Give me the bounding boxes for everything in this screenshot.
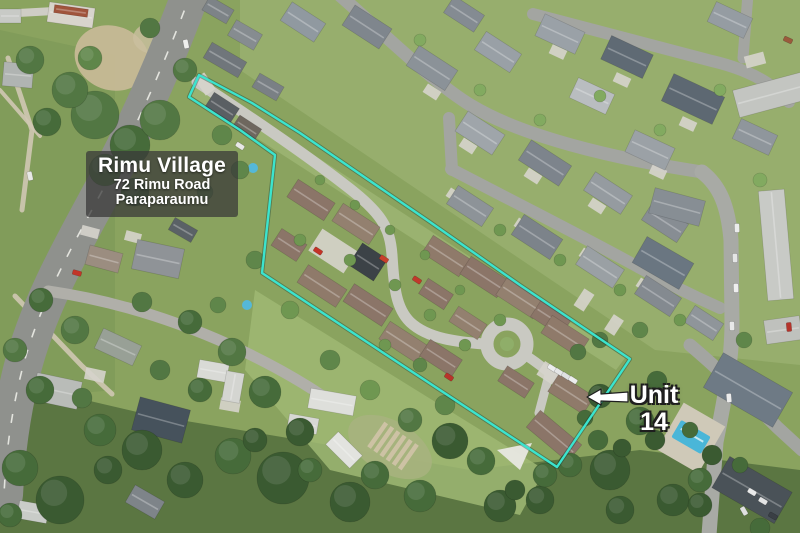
tree xyxy=(736,332,752,348)
aerial-screenshot: Rimu Village 72 Rimu Road Paraparaumu Un… xyxy=(0,0,800,533)
tree xyxy=(140,18,160,38)
property-city: Paraparaumu xyxy=(86,193,238,209)
tree xyxy=(414,34,426,46)
tree xyxy=(714,84,726,96)
tree xyxy=(360,380,380,400)
tree xyxy=(315,175,325,185)
tree xyxy=(534,114,546,126)
tree xyxy=(594,90,606,102)
tree xyxy=(494,224,506,236)
property-address: 72 Rimu Road xyxy=(86,178,238,194)
tree xyxy=(702,445,722,465)
tree xyxy=(320,350,340,370)
tree xyxy=(753,173,767,187)
unit-annotation-line2: 14 xyxy=(612,409,696,436)
tree xyxy=(150,360,170,380)
tree xyxy=(344,254,356,266)
tree xyxy=(385,225,395,235)
tree xyxy=(588,430,608,450)
unit-annotation: Unit 14 xyxy=(612,382,696,436)
house-roof xyxy=(764,316,800,345)
tree xyxy=(455,285,465,295)
tree xyxy=(632,322,648,338)
tree xyxy=(474,84,486,96)
car xyxy=(733,283,738,292)
tree xyxy=(613,439,631,457)
aerial-map xyxy=(0,0,800,533)
tree xyxy=(424,309,436,321)
tree xyxy=(210,297,226,313)
tree xyxy=(554,254,566,266)
tree xyxy=(389,279,401,291)
tree xyxy=(212,125,232,145)
tree xyxy=(614,284,626,296)
tree xyxy=(494,314,506,326)
tree xyxy=(72,388,92,408)
car xyxy=(732,253,737,262)
car xyxy=(729,321,734,330)
tree xyxy=(281,301,299,319)
tree xyxy=(570,344,586,360)
property-name: Rimu Village xyxy=(86,155,238,178)
tree xyxy=(505,480,525,500)
car xyxy=(786,322,792,331)
car xyxy=(734,223,739,232)
tree xyxy=(294,234,306,246)
tree xyxy=(350,200,360,210)
tree xyxy=(420,250,430,260)
tree xyxy=(413,358,427,372)
tree xyxy=(732,457,748,473)
car xyxy=(726,393,732,402)
tree xyxy=(674,314,686,326)
unit-annotation-line1: Unit xyxy=(612,382,696,409)
house-roof xyxy=(0,9,21,23)
tree xyxy=(132,292,152,312)
property-title-card: Rimu Village 72 Rimu Road Paraparaumu xyxy=(86,151,238,217)
tree xyxy=(459,339,471,351)
tree xyxy=(654,124,666,136)
